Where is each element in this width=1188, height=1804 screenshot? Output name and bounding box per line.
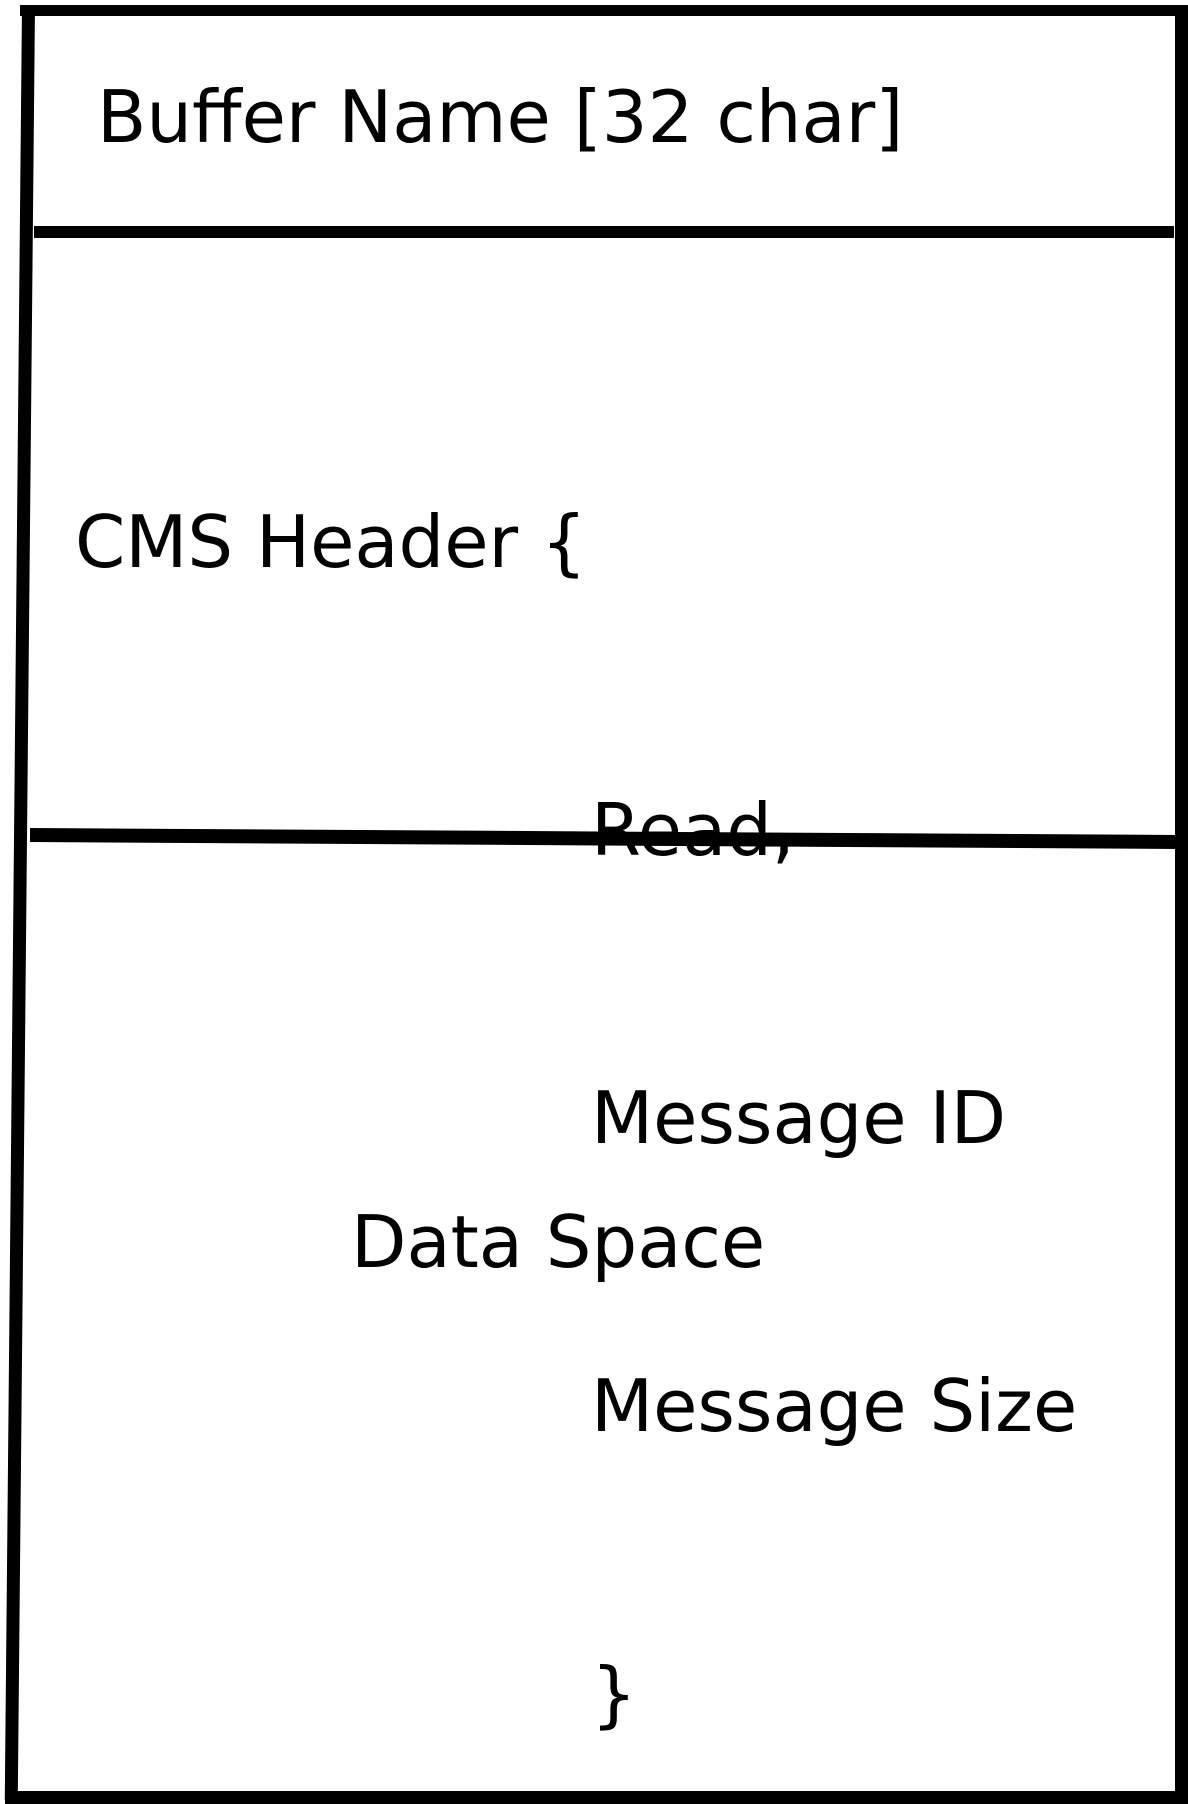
cms-header-close-label: } xyxy=(591,1646,1077,1742)
cms-field-message-id: Message ID xyxy=(591,1070,1077,1166)
buffer-name-divider xyxy=(34,226,1174,238)
frame-border-right xyxy=(1175,5,1188,1804)
data-space-label: Data Space xyxy=(351,1194,765,1290)
frame-border-top xyxy=(20,5,1188,16)
frame-border-left xyxy=(5,5,35,1800)
cms-header-open-label: CMS Header { xyxy=(75,494,1077,590)
cms-field-read: Read, xyxy=(591,782,1077,878)
buffer-memory-diagram: Buffer Name [32 char] CMS Header { Read,… xyxy=(0,0,1188,1804)
cms-field-message-size: Message Size xyxy=(591,1358,1077,1454)
cms-header-section: CMS Header { Read, Message ID Message Si… xyxy=(75,302,1077,1804)
buffer-name-label: Buffer Name [32 char] xyxy=(97,69,903,165)
